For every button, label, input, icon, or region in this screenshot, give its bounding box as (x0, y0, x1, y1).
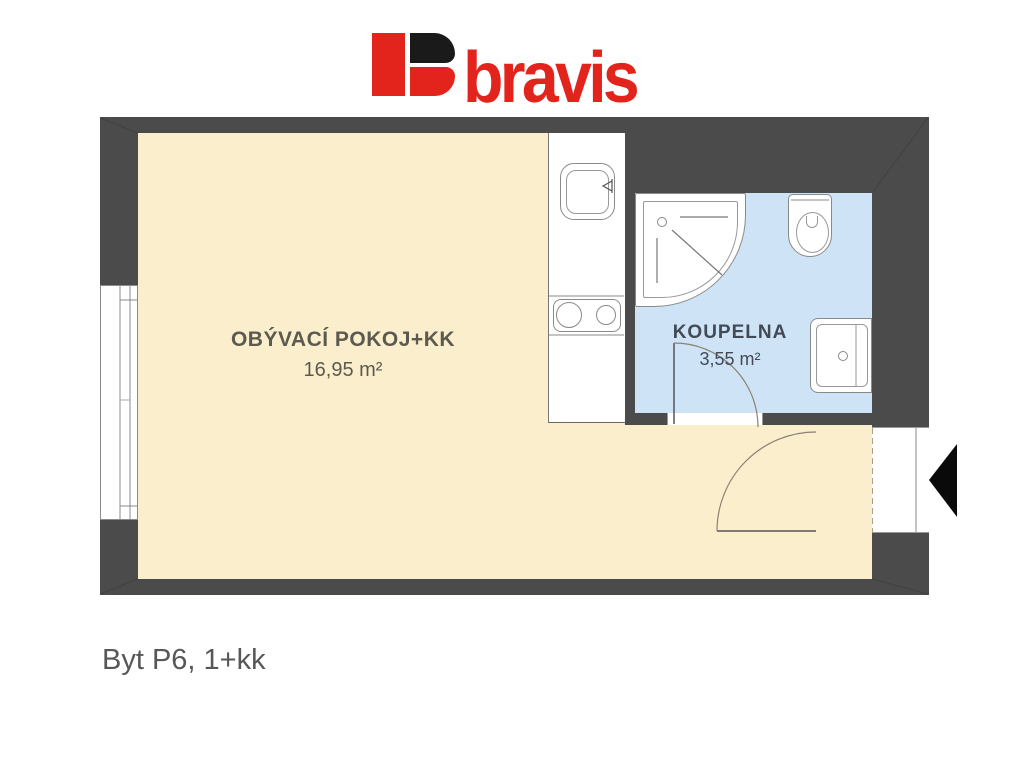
toilet-flush (806, 216, 818, 228)
wall-segment (625, 133, 872, 193)
logomark-bowl-bottom (410, 67, 455, 97)
cooktop-burner-large (556, 302, 582, 328)
bathroom-label: KOUPELNA (610, 322, 850, 344)
window (100, 285, 138, 520)
entrance-arrow-icon (929, 444, 957, 517)
entry-door-opening (872, 427, 929, 533)
bathroom-label-block: KOUPELNA 3,55 m² (610, 322, 850, 370)
bathroom-door-opening (667, 413, 763, 425)
logomark-bowls (410, 33, 455, 96)
plan-caption: Byt P6, 1+kk (102, 644, 266, 677)
shower-head (657, 217, 667, 227)
floor-plan: OBÝVACÍ POKOJ+KK 16,95 m² KOUPELNA 3,55 … (0, 115, 1024, 600)
logomark-bar (372, 33, 405, 96)
logomark-bowl-top (410, 33, 455, 63)
bravis-logomark-icon (372, 33, 455, 96)
bravis-logo: bravis (0, 30, 1024, 96)
kitchen-sink-bowl (566, 170, 609, 214)
bathroom-area: 3,55 m² (610, 349, 850, 370)
logo-text: bravis (463, 47, 636, 110)
living-room-area: 16,95 m² (138, 359, 548, 382)
living-room-label-block: OBÝVACÍ POKOJ+KK 16,95 m² (138, 328, 548, 382)
living-room-label: OBÝVACÍ POKOJ+KK (138, 328, 548, 352)
